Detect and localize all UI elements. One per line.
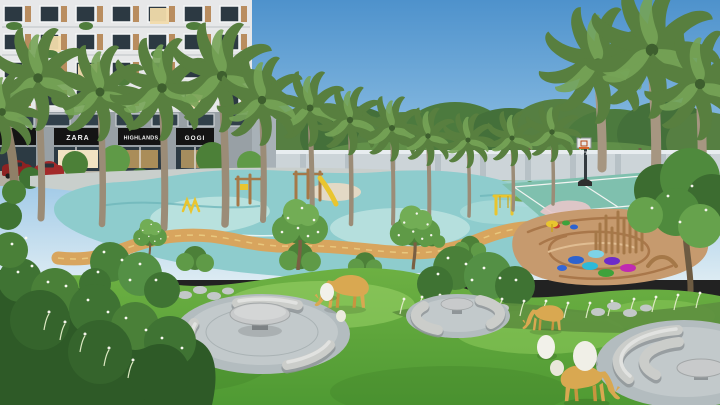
stone-table: [230, 303, 290, 337]
rendering-canvas: ZARA HIGHLANDS GOGI: [0, 0, 720, 405]
storefront-sign-gogi: GOGI: [185, 135, 206, 142]
landscape-rendering: ZARA HIGHLANDS GOGI: [0, 0, 720, 405]
storefront-sign-zara: ZARA: [66, 135, 89, 142]
yellow-play-panel: [240, 184, 248, 190]
storefront-sign-highlands: HIGHLANDS: [124, 136, 159, 142]
stone-seating-circle-mid: [406, 294, 510, 338]
